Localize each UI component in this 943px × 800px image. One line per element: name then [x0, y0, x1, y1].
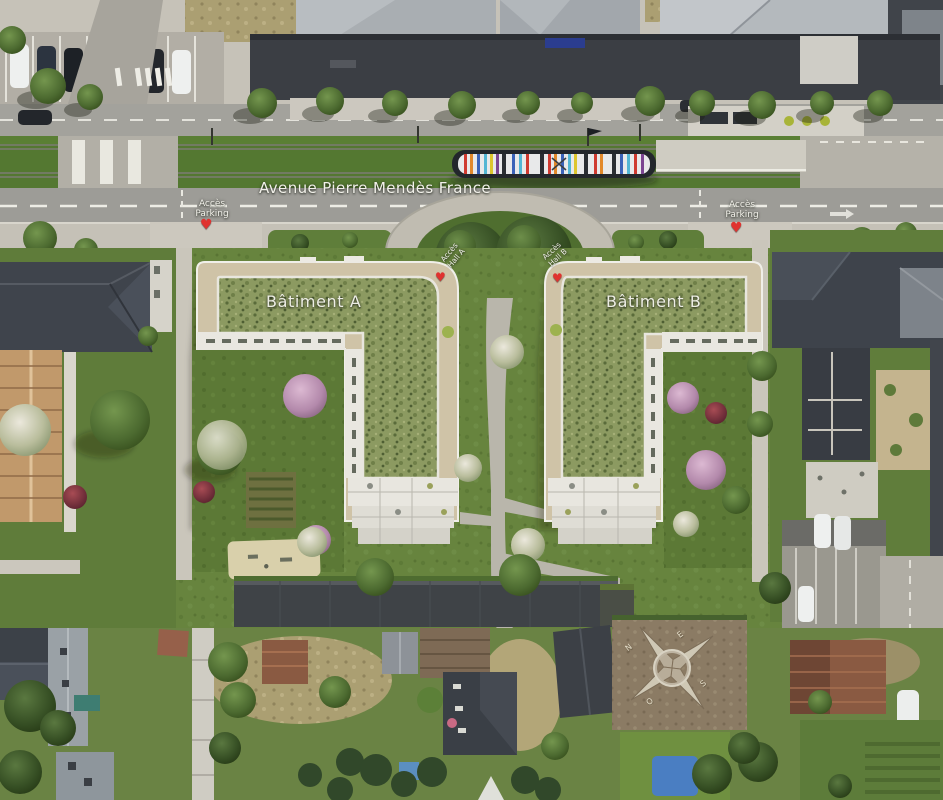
hall-access-b-marker-icon: ♥	[552, 272, 563, 284]
parking-access-left-line1: Accès	[184, 199, 240, 209]
parking-access-left-marker-icon: ♥	[200, 218, 213, 232]
building-a-label: Bâtiment A	[266, 292, 361, 311]
west-boundary-path	[176, 248, 192, 580]
aerial-site-plan: Avenue Pierre Mendès France Bâtiment A B…	[0, 0, 943, 800]
vegetable-garden	[246, 472, 296, 528]
building-b-facade-south	[662, 332, 762, 352]
parking-access-right-marker-icon: ♥	[730, 221, 743, 235]
parking-access-right-line1: Accès	[714, 200, 770, 210]
building-a-facade-west	[345, 349, 363, 478]
left-neighbour	[0, 248, 176, 630]
north-frontage	[0, 0, 943, 140]
building-b-terraces	[548, 478, 660, 544]
street-name-label: Avenue Pierre Mendès France	[259, 179, 491, 197]
building-a-terraces	[348, 478, 458, 544]
development-site	[158, 240, 798, 630]
parking-access-right-line2: Parking	[714, 210, 770, 220]
left-crossing	[58, 136, 178, 188]
hall-access-a-marker-icon: ♥	[435, 271, 446, 283]
parking-access-left-label: Accès Parking	[184, 199, 240, 219]
north-buildings	[250, 0, 943, 112]
parking-access-right-label: Accès Parking	[714, 200, 770, 220]
building-b-facade-east	[644, 349, 662, 478]
aerial-photo-canvas	[0, 0, 943, 800]
north-platform	[688, 106, 864, 136]
building-b-label: Bâtiment B	[606, 292, 701, 311]
building-a-facade-south	[197, 332, 345, 352]
compass-courtyard	[599, 595, 747, 741]
courtyard-garden-b	[664, 352, 752, 568]
right-parking	[782, 514, 886, 628]
right-neighbour	[747, 230, 943, 634]
south-platform	[656, 140, 806, 172]
